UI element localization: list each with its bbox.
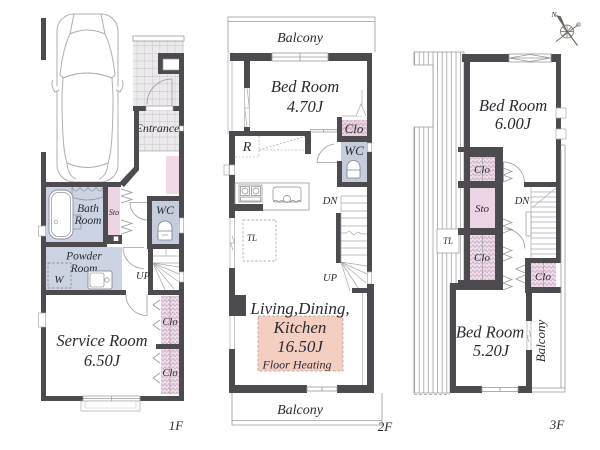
svg-text:2F: 2F <box>378 419 394 434</box>
svg-text:N: N <box>550 10 557 19</box>
svg-text:Clo: Clo <box>345 121 364 136</box>
svg-text:UP: UP <box>136 271 151 282</box>
svg-text:3F: 3F <box>549 417 566 432</box>
svg-text:5.20J: 5.20J <box>473 341 510 360</box>
svg-text:UP: UP <box>323 273 338 284</box>
svg-text:Room: Room <box>74 215 102 227</box>
svg-text:6.00J: 6.00J <box>495 114 532 133</box>
svg-text:TL: TL <box>443 236 453 246</box>
svg-text:WC: WC <box>344 143 364 158</box>
svg-text:R: R <box>242 140 252 155</box>
svg-text:Living,Dining,: Living,Dining, <box>249 299 349 318</box>
svg-text:1F: 1F <box>169 418 185 433</box>
svg-text:TL: TL <box>247 233 257 243</box>
svg-text:Powder: Powder <box>65 251 102 263</box>
svg-text:DN: DN <box>322 196 339 207</box>
svg-text:Clo: Clo <box>474 252 490 264</box>
svg-text:Bath: Bath <box>77 203 99 215</box>
svg-text:6.50J: 6.50J <box>84 351 121 370</box>
svg-text:Sto: Sto <box>109 208 119 217</box>
svg-text:Sto: Sto <box>475 203 490 215</box>
svg-text:Clo: Clo <box>162 317 177 328</box>
svg-text:4.70J: 4.70J <box>287 97 324 116</box>
svg-text:Service Room: Service Room <box>56 331 147 350</box>
svg-text:16.50J: 16.50J <box>277 337 324 356</box>
svg-text:Bed Room: Bed Room <box>479 96 547 115</box>
svg-text:Bed Room: Bed Room <box>456 323 524 342</box>
svg-text:Balcony: Balcony <box>533 319 548 362</box>
svg-text:Balcony: Balcony <box>277 403 324 418</box>
svg-text:Clo: Clo <box>535 271 551 283</box>
svg-text:DN: DN <box>514 196 531 207</box>
svg-text:Clo: Clo <box>162 368 177 379</box>
svg-text:Floor Heating: Floor Heating <box>262 358 332 372</box>
svg-text:Clo: Clo <box>474 164 490 176</box>
svg-text:Balcony: Balcony <box>277 31 324 46</box>
svg-text:WC: WC <box>156 203 175 217</box>
svg-text:Bed Room: Bed Room <box>271 77 339 96</box>
svg-text:W: W <box>54 274 64 286</box>
svg-text:Entrance: Entrance <box>135 121 181 135</box>
svg-text:Kitchen: Kitchen <box>273 318 327 337</box>
